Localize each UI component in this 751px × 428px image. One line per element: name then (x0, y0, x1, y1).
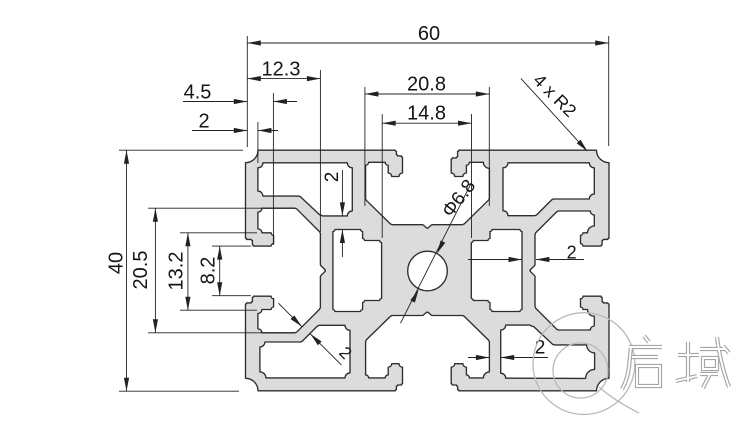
svg-text:2: 2 (322, 172, 343, 183)
svg-text:13.2: 13.2 (166, 252, 188, 291)
svg-text:8.2: 8.2 (198, 257, 220, 285)
svg-text:4.5: 4.5 (184, 82, 212, 104)
svg-text:60: 60 (418, 23, 440, 45)
svg-text:12.3: 12.3 (262, 59, 301, 81)
svg-text:40: 40 (106, 252, 128, 274)
svg-text:2: 2 (535, 338, 546, 359)
svg-text:20.8: 20.8 (407, 74, 446, 96)
svg-text:20.5: 20.5 (130, 251, 152, 290)
svg-text:14.8: 14.8 (407, 103, 446, 125)
svg-text:2: 2 (198, 111, 209, 133)
svg-text:2: 2 (567, 243, 577, 263)
